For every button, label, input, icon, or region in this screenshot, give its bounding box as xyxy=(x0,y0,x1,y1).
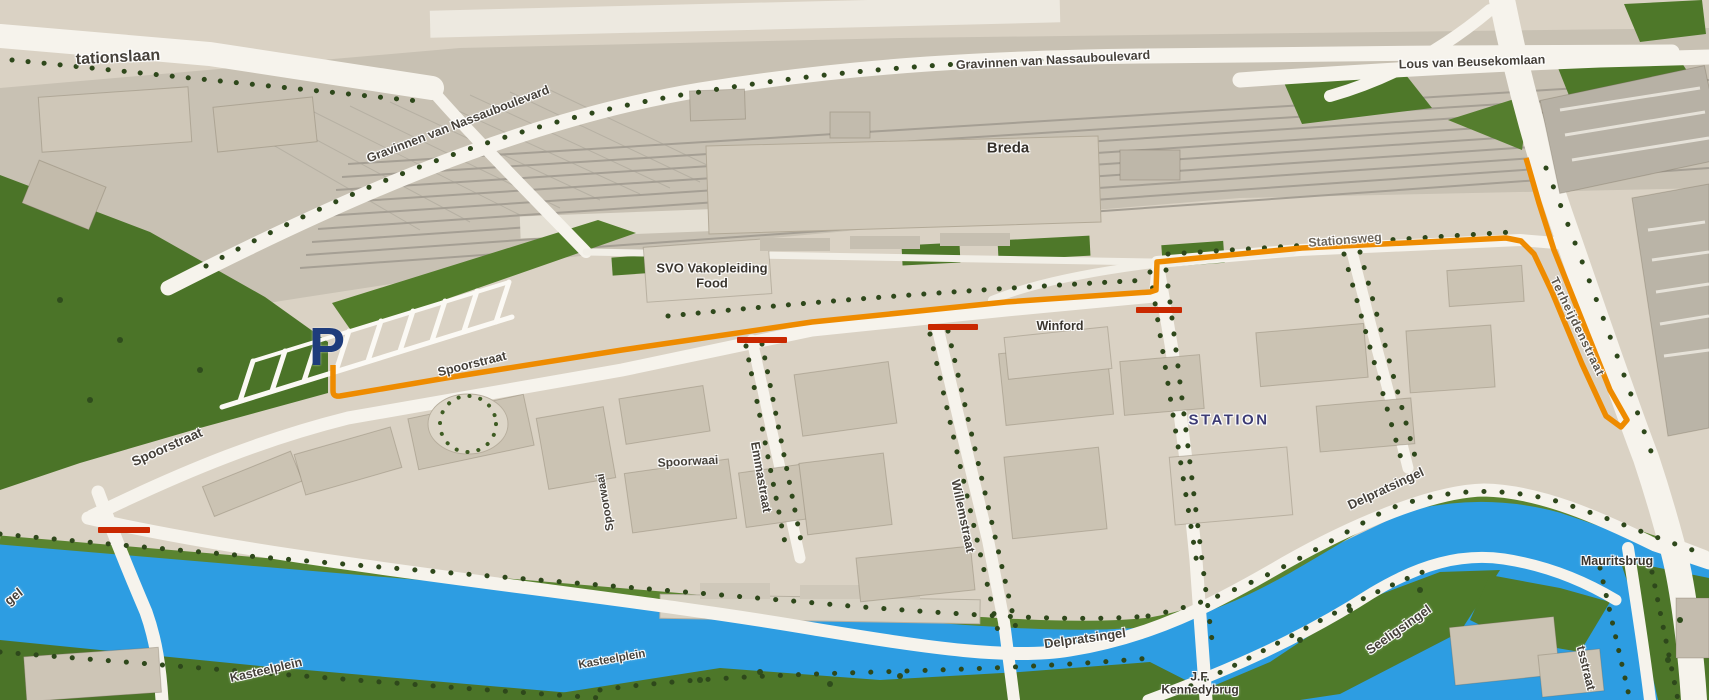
route-barrier-marker xyxy=(928,324,978,330)
route-barrier-marker xyxy=(98,527,150,533)
svo-label-line2: Food xyxy=(656,276,767,291)
round-courtyard xyxy=(428,394,508,454)
station-block xyxy=(1169,447,1292,525)
place-label-mauritsbrug: Mauritsbrug xyxy=(1581,554,1653,568)
place-label-svo-vakopleiding-food: SVO Vakopleiding Food xyxy=(656,261,767,290)
kennedybrug-label-line2: Kennedybrug xyxy=(1161,684,1238,697)
map-canvas xyxy=(0,0,1709,700)
parking-marker: P xyxy=(309,316,345,378)
place-label-breda: Breda xyxy=(987,141,1030,158)
place-label-station: STATION xyxy=(1188,413,1269,430)
route-barrier-marker xyxy=(1136,307,1182,313)
route-barrier-marker xyxy=(737,337,787,343)
place-label-winford: Winford xyxy=(1036,319,1083,333)
svo-label-line1: SVO Vakopleiding xyxy=(656,261,767,276)
city-map: tationslaan Gravinnen van Nassauboulevar… xyxy=(0,0,1709,700)
place-label-kennedybrug: J.F. Kennedybrug xyxy=(1161,671,1238,698)
